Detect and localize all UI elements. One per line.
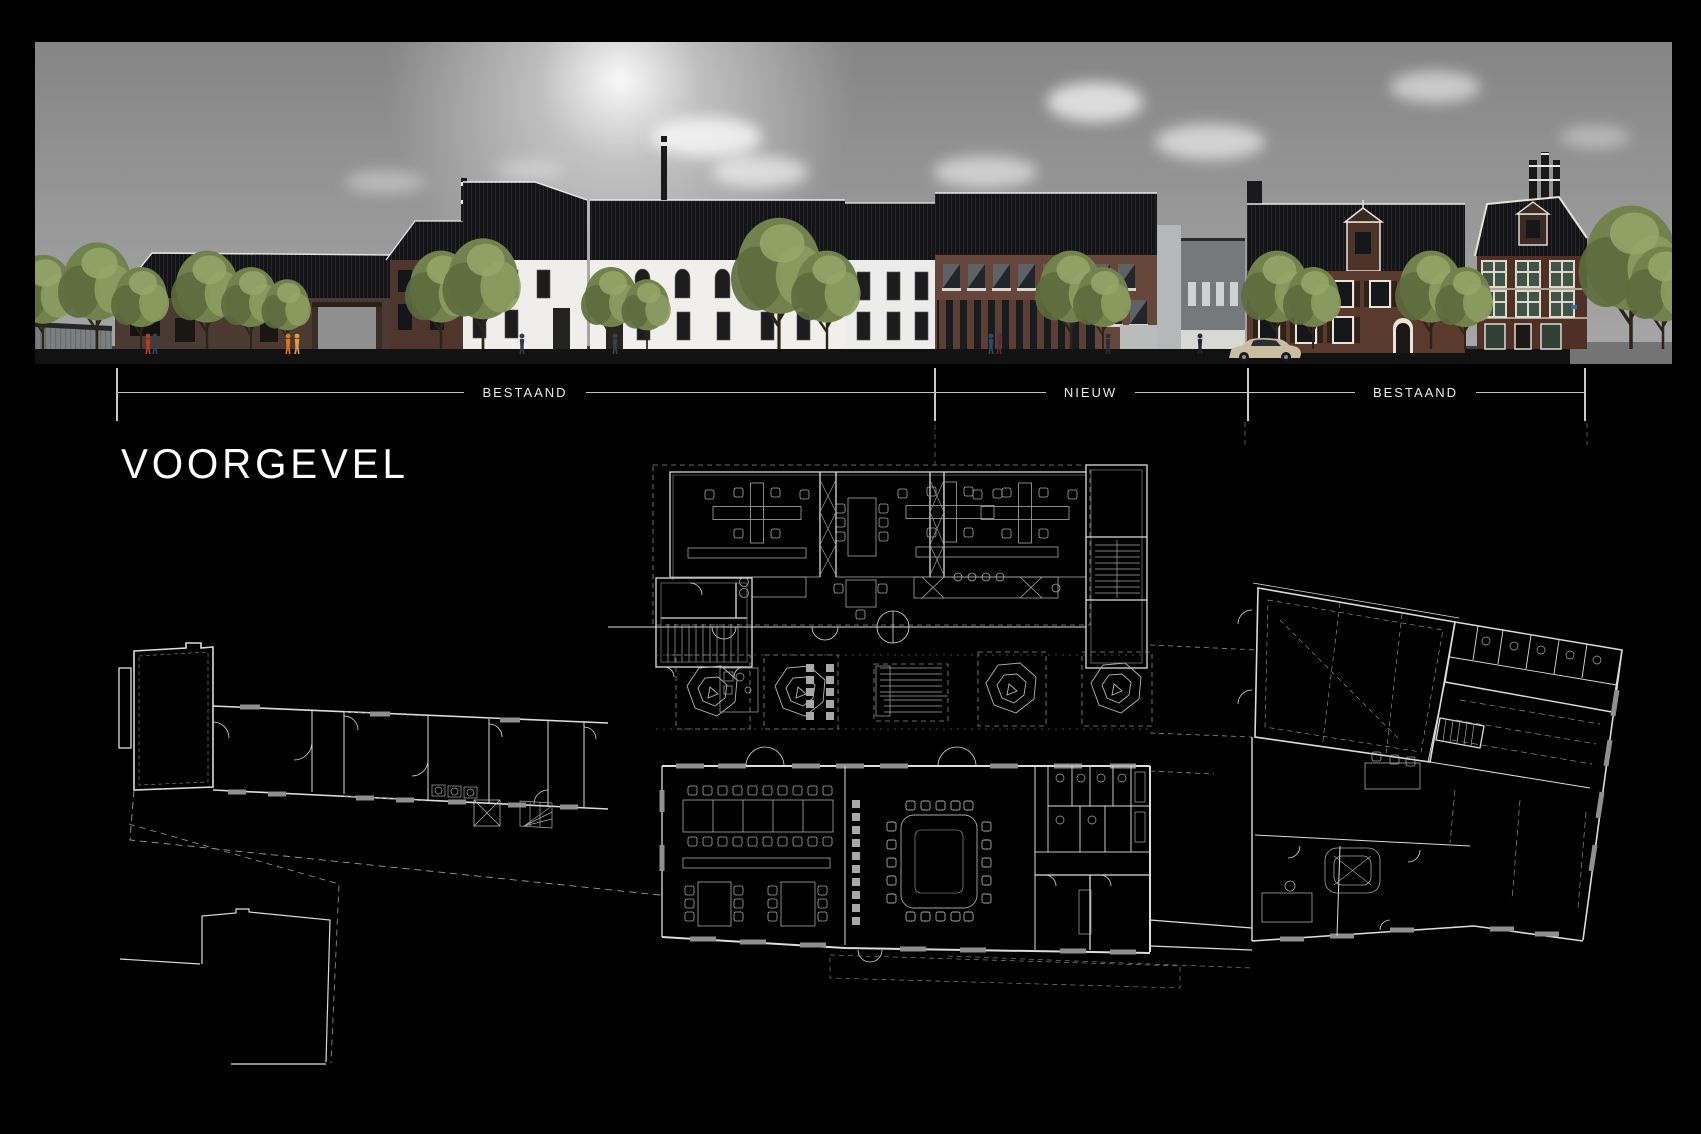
lower-right-rooms [1035,875,1150,950]
kitchenette [720,668,758,712]
wing-stair [1436,718,1484,748]
stair-tower [1086,465,1147,668]
desk-clusters [688,482,1077,619]
courtyard-outline [120,824,339,1064]
wall-chair-row [852,800,860,925]
link-corridor [1150,645,1258,950]
square-meeting-table [887,801,991,921]
small-tables [685,882,827,926]
left-wing [119,643,660,895]
conference-table [683,786,833,868]
right-wing [1238,583,1622,941]
toilet-cluster [1035,766,1150,852]
presentation-board: BESTAAND NIEUW BESTAAND VOORGEVEL [0,0,1701,1134]
upper-office-block [608,465,1090,643]
central-stair [876,666,948,716]
site-dashed-lines [830,955,1252,988]
appliances [432,785,477,798]
lower-hall-block [662,747,1150,962]
patio-trees [687,663,1141,716]
floor-plan-drawing [0,0,1701,1134]
